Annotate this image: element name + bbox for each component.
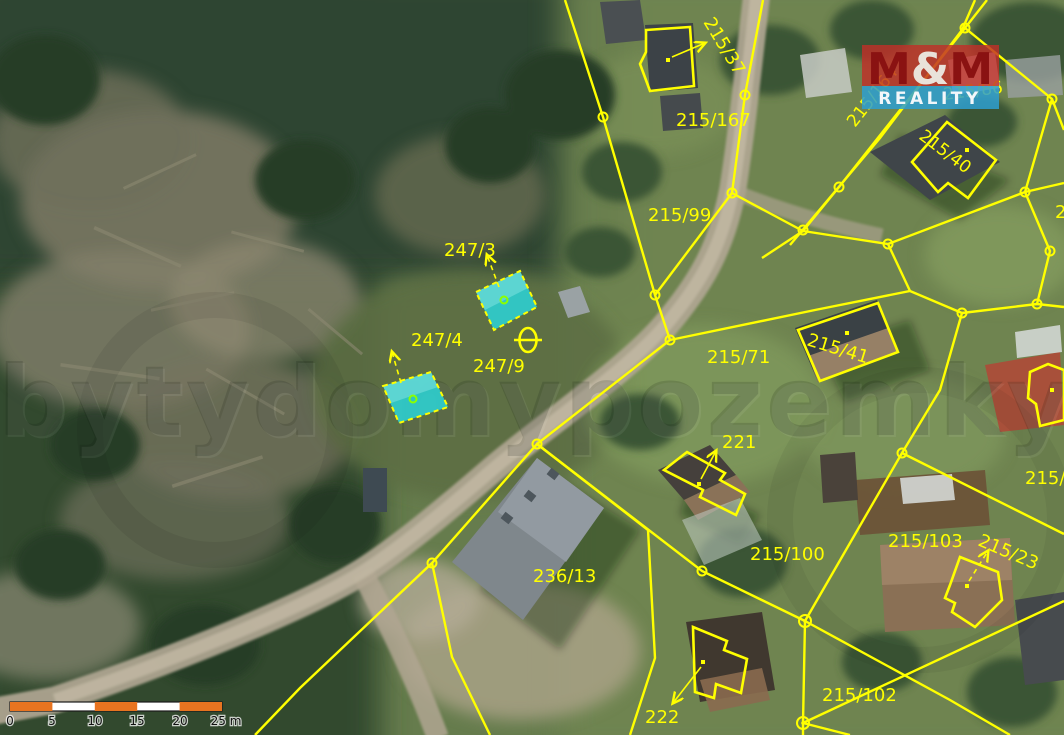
map-viewport: bytydomypozemky bytydomypozemky <box>0 0 1064 735</box>
parcel-label-247-3: 247/3 <box>444 240 496 261</box>
parcel-label-215-9: 215/9 <box>1025 468 1064 489</box>
scale-tick-10: 10 <box>87 714 102 728</box>
cadastral-map-image: bytydomypozemky bytydomypozemky <box>0 0 1064 735</box>
realty-logo: M&M REALITY <box>862 44 999 109</box>
scale-tick-0: 0 <box>6 714 14 728</box>
parcel-label-2-partial: 2 <box>1055 202 1064 223</box>
parcel-label-215-103: 215/103 <box>888 531 963 552</box>
logo-m1: M <box>867 44 911 95</box>
scale-bar-segment <box>95 702 137 711</box>
logo-m2: M <box>949 44 993 95</box>
parcel-label-222: 222 <box>645 707 679 728</box>
parcel-label-215-71: 215/71 <box>707 347 770 368</box>
scale-tick-5: 5 <box>48 714 56 728</box>
scale-tick-25m: 25 m <box>211 714 242 728</box>
logo-mm-text: M&M <box>867 44 993 95</box>
logo-reality-text: REALITY <box>878 89 981 109</box>
parcel-label-221: 221 <box>722 432 756 453</box>
scale-tick-15: 15 <box>129 714 144 728</box>
logo-ampersand: & <box>911 44 949 95</box>
parcel-label-215-102: 215/102 <box>822 685 897 706</box>
parcel-label-215-99: 215/99 <box>648 205 711 226</box>
parcel-label-247-9: 247/9 <box>473 356 525 377</box>
parcel-label-236-13: 236/13 <box>533 566 596 587</box>
parcel-label-247-4: 247/4 <box>411 330 463 351</box>
scale-tick-20: 20 <box>172 714 187 728</box>
scale-bar-segment <box>10 702 52 711</box>
parcel-label-215-167: 215/167 <box>676 110 751 131</box>
scale-bar-segment <box>180 702 222 711</box>
parcel-label-215-100: 215/100 <box>750 544 825 565</box>
watermark-text: bytydomypozemky <box>0 345 1064 458</box>
